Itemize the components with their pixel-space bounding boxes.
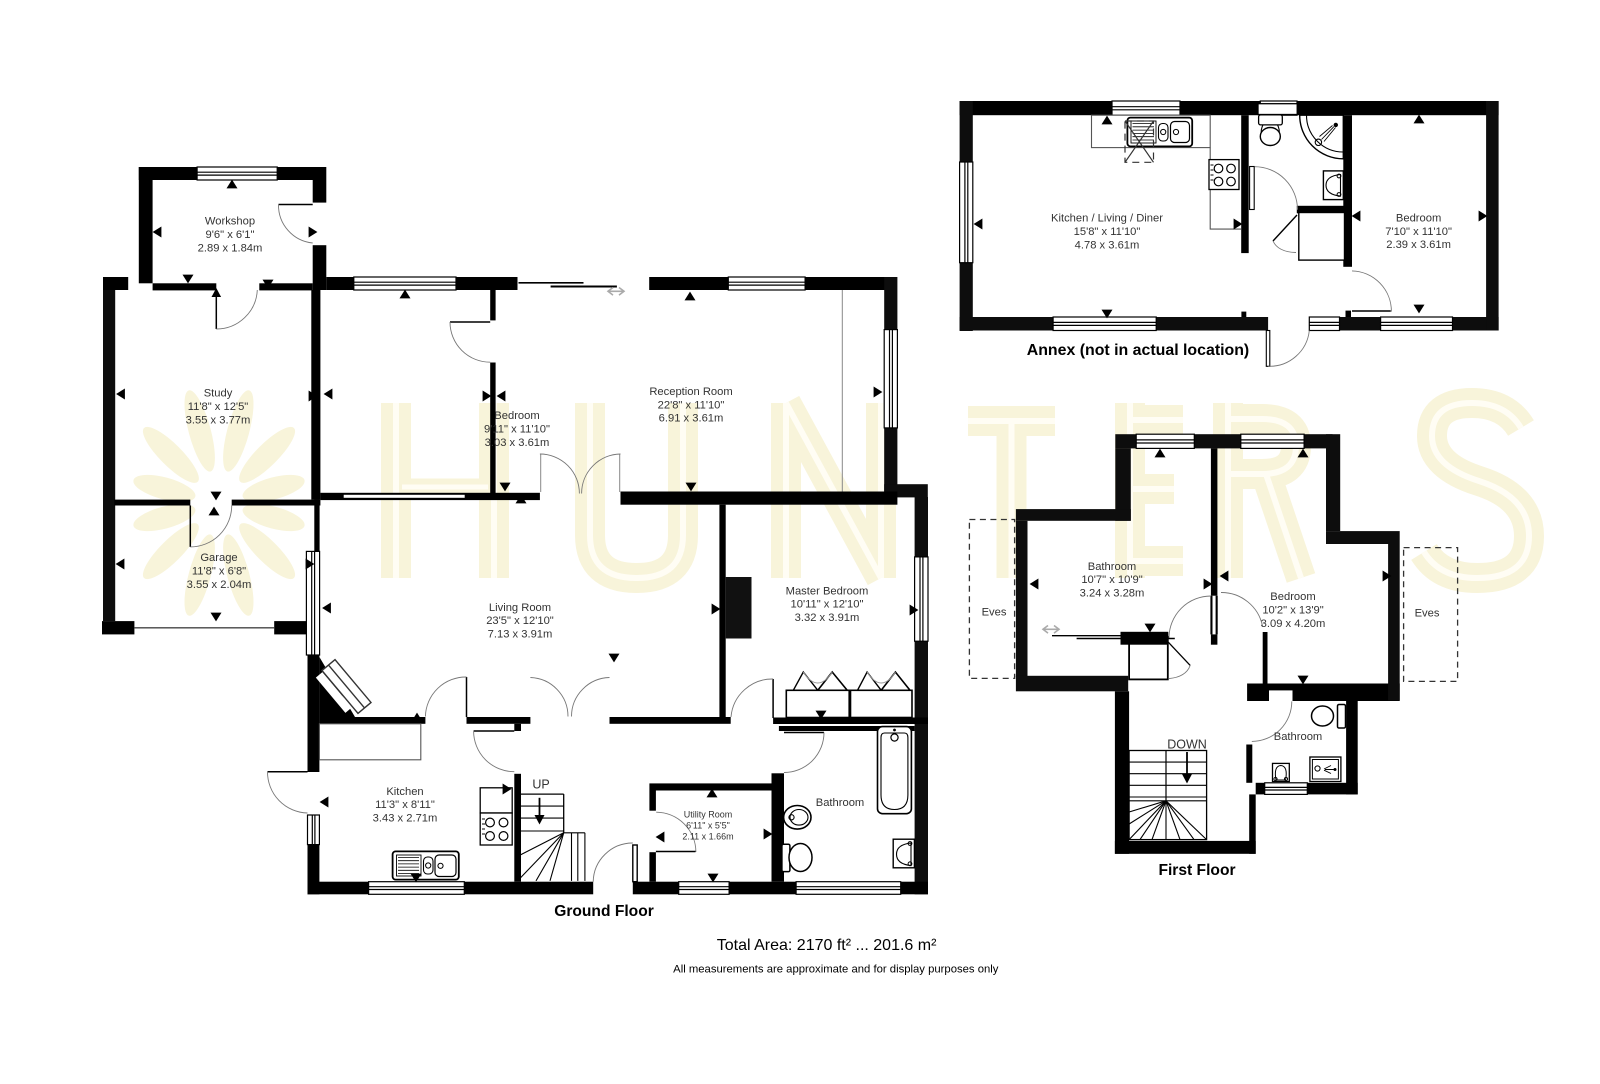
svg-text:Utility Room6'11" x 5'5"2.11 x: Utility Room6'11" x 5'5"2.11 x 1.66m bbox=[682, 810, 733, 842]
svg-text:Living Room23'5" x 12'10"7.13: Living Room23'5" x 12'10"7.13 x 3.91m bbox=[486, 602, 554, 641]
svg-text:Ground Floor: Ground Floor bbox=[554, 903, 654, 920]
svg-text:Bathroom10'7" x 10'9"3.24 x 3.: Bathroom10'7" x 10'9"3.24 x 3.28m bbox=[1080, 561, 1145, 600]
svg-text:First Floor: First Floor bbox=[1158, 862, 1235, 879]
svg-text:Master Bedroom10'11" x 12'10"3: Master Bedroom10'11" x 12'10"3.32 x 3.91… bbox=[786, 585, 869, 624]
svg-text:Bathroom: Bathroom bbox=[816, 797, 865, 809]
svg-text:Total Area: 2170 ft² ... 201.6: Total Area: 2170 ft² ... 201.6 m² bbox=[717, 937, 937, 954]
svg-text:Reception Room22'8" x 11'10"6.: Reception Room22'8" x 11'10"6.91 x 3.61m bbox=[649, 386, 732, 425]
svg-text:Annex (not in actual location): Annex (not in actual location) bbox=[1027, 342, 1249, 359]
svg-text:Bedroom10'2" x 13'9"3.09 x 4.2: Bedroom10'2" x 13'9"3.09 x 4.20m bbox=[1261, 591, 1326, 630]
svg-text:UP: UP bbox=[532, 777, 549, 791]
svg-text:Eves: Eves bbox=[982, 607, 1007, 619]
svg-text:Bathroom: Bathroom bbox=[1274, 731, 1323, 743]
svg-text:Workshop9'6" x 6'1"2.89 x 1.84: Workshop9'6" x 6'1"2.89 x 1.84m bbox=[198, 216, 263, 255]
svg-text:Eves: Eves bbox=[1415, 608, 1440, 620]
svg-text:DOWN: DOWN bbox=[1167, 738, 1207, 752]
svg-text:All measurements are approxima: All measurements are approximate and for… bbox=[673, 964, 999, 976]
